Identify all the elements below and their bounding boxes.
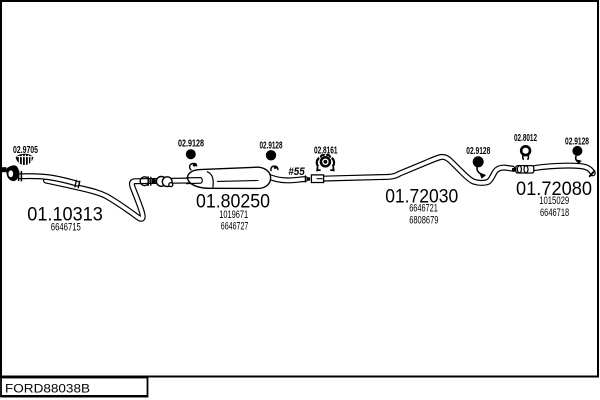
svg-text:1015029: 1015029 <box>539 195 569 207</box>
svg-text:02.9128: 02.9128 <box>565 136 589 147</box>
svg-text:6646715: 6646715 <box>51 221 81 233</box>
svg-text:02.8012: 02.8012 <box>514 133 537 144</box>
svg-text:02.9128: 02.9128 <box>466 146 490 157</box>
svg-text:FORD88038B: FORD88038B <box>5 381 90 395</box>
svg-text:6646718: 6646718 <box>540 207 569 219</box>
svg-text:6646727: 6646727 <box>221 220 249 232</box>
svg-text:6808679: 6808679 <box>409 215 438 227</box>
svg-text:02.9128: 02.9128 <box>260 141 283 152</box>
svg-text:6646721: 6646721 <box>409 203 438 215</box>
svg-text:1019671: 1019671 <box>219 209 248 221</box>
svg-text:02.8161: 02.8161 <box>314 146 338 157</box>
svg-text:02.9128: 02.9128 <box>178 139 204 150</box>
svg-text:#55: #55 <box>288 166 305 178</box>
svg-text:02.9705: 02.9705 <box>13 145 38 156</box>
